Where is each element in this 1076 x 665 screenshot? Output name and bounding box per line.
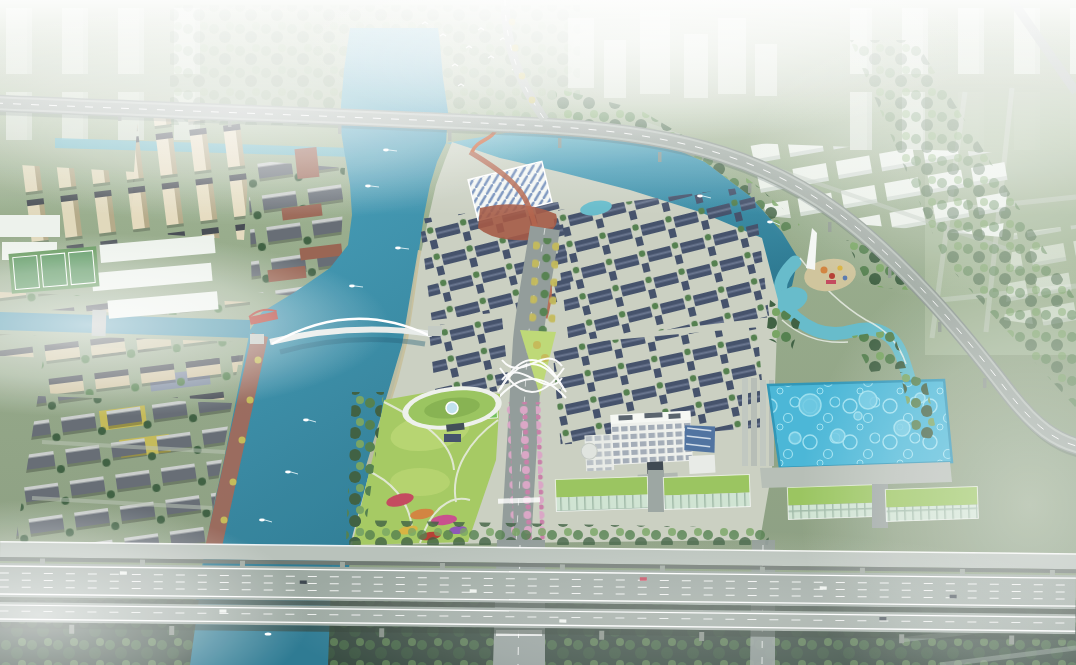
haze-tint	[0, 0, 1076, 665]
fog-banks	[0, 0, 1076, 665]
rendering-canvas: Aerial bird's-eye architectural renderin…	[0, 0, 1076, 665]
aerial-rendering: Aerial bird's-eye architectural renderin…	[0, 0, 1076, 665]
